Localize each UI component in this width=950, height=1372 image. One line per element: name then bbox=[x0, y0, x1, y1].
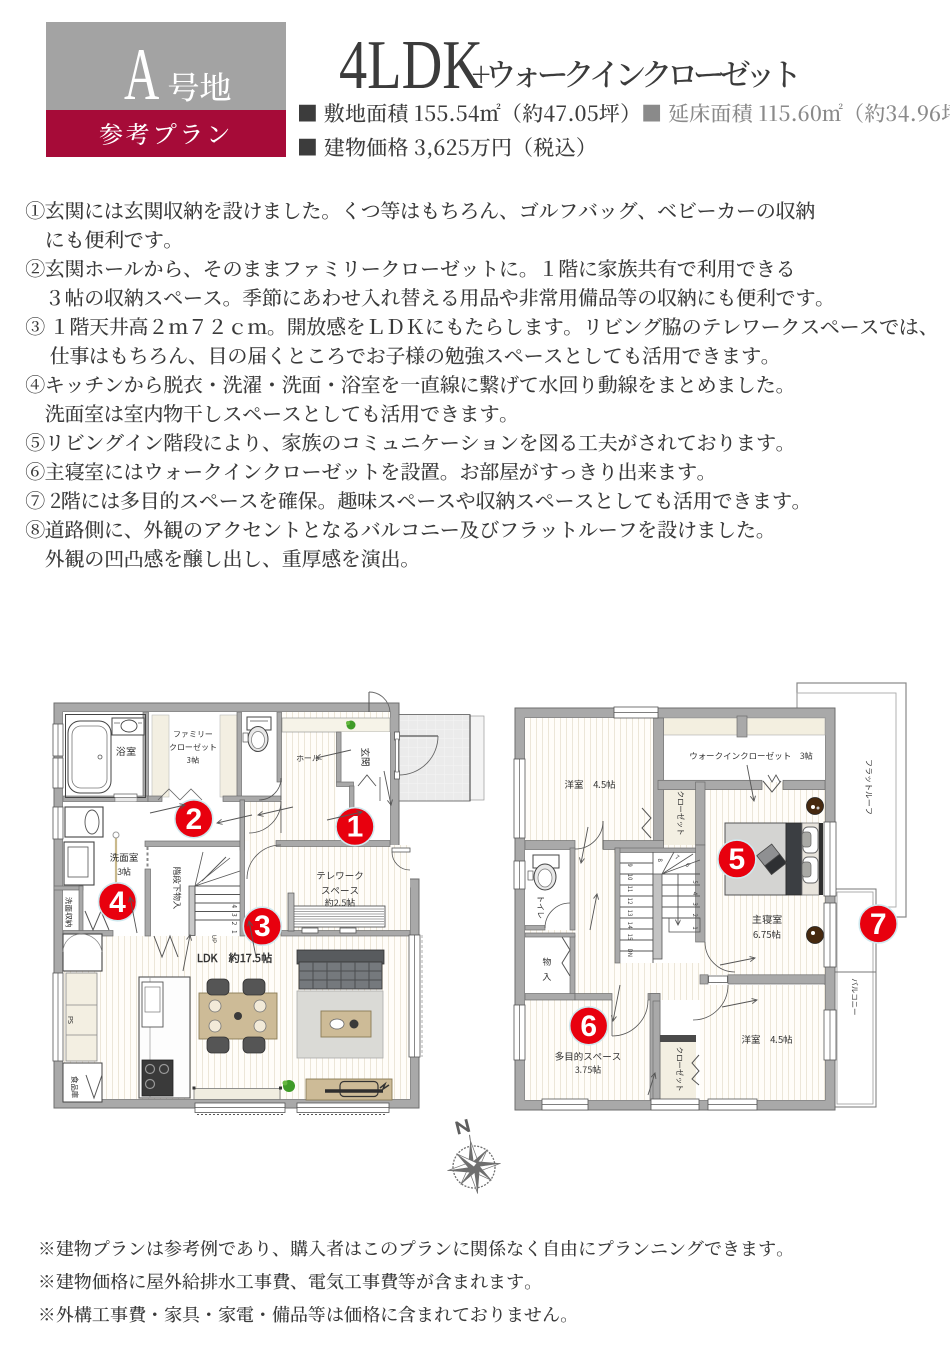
svg-text:階段下物入: 階段下物入 bbox=[171, 867, 183, 910]
svg-text:3: 3 bbox=[230, 912, 240, 917]
svg-text:10: 10 bbox=[626, 874, 635, 881]
svg-text:ウォークインクローゼット 3帖: ウォークインクローゼット 3帖 bbox=[689, 750, 813, 762]
svg-text:バルコニー: バルコニー bbox=[849, 978, 860, 1016]
svg-text:入: 入 bbox=[542, 970, 551, 983]
svg-text:14: 14 bbox=[626, 922, 635, 929]
svg-text:3帖: 3帖 bbox=[116, 865, 131, 878]
svg-text:2: 2 bbox=[230, 921, 240, 925]
svg-text:主寝室: 主寝室 bbox=[752, 911, 782, 926]
svg-text:5: 5 bbox=[691, 879, 700, 883]
svg-text:UP: UP bbox=[210, 935, 219, 943]
svg-text:6: 6 bbox=[580, 1010, 597, 1043]
svg-text:3.75帖: 3.75帖 bbox=[574, 1063, 602, 1076]
svg-text:クローゼット: クローゼット bbox=[675, 791, 686, 836]
svg-text:多目的スペース: 多目的スペース bbox=[555, 1049, 622, 1063]
svg-text:洗面室: 洗面室 bbox=[110, 850, 139, 864]
svg-text:15: 15 bbox=[626, 934, 635, 941]
svg-text:7: 7 bbox=[870, 908, 887, 941]
svg-text:テレワーク: テレワーク bbox=[316, 868, 364, 882]
svg-text:3帖: 3帖 bbox=[187, 755, 199, 766]
svg-text:洋室 4.5帖: 洋室 4.5帖 bbox=[564, 777, 615, 791]
svg-text:LDK 約17.5帖: LDK 約17.5帖 bbox=[197, 950, 272, 966]
svg-text:2: 2 bbox=[185, 803, 202, 836]
svg-text:ホール: ホール bbox=[296, 753, 320, 764]
svg-text:3: 3 bbox=[254, 910, 271, 943]
svg-text:5: 5 bbox=[729, 843, 746, 876]
svg-text:物: 物 bbox=[542, 955, 551, 968]
svg-text:浴室: 浴室 bbox=[116, 743, 136, 758]
svg-text:トイレ: トイレ bbox=[535, 895, 546, 919]
svg-text:クローゼット: クローゼット bbox=[674, 1047, 685, 1092]
svg-text:1: 1 bbox=[347, 811, 364, 844]
svg-text:12: 12 bbox=[626, 898, 635, 905]
svg-text:洗面収納: 洗面収納 bbox=[63, 896, 74, 927]
svg-text:スペース: スペース bbox=[321, 883, 359, 897]
svg-text:1: 1 bbox=[691, 926, 700, 929]
svg-text:玄関: 玄関 bbox=[359, 747, 373, 766]
svg-text:PS: PS bbox=[65, 1016, 75, 1025]
svg-text:3: 3 bbox=[691, 902, 700, 905]
svg-text:4: 4 bbox=[109, 886, 126, 919]
svg-text:1: 1 bbox=[230, 930, 240, 934]
svg-text:11: 11 bbox=[626, 886, 635, 893]
svg-text:13: 13 bbox=[626, 910, 635, 917]
svg-text:9: 9 bbox=[626, 863, 635, 866]
svg-text:2: 2 bbox=[691, 913, 700, 916]
svg-text:ファミリー: ファミリー bbox=[173, 729, 213, 740]
svg-text:食品庫: 食品庫 bbox=[69, 1076, 80, 1099]
svg-text:約2.5帖: 約2.5帖 bbox=[325, 896, 356, 909]
svg-text:洋室 4.5帖: 洋室 4.5帖 bbox=[741, 1032, 792, 1046]
svg-text:DN: DN bbox=[626, 949, 635, 957]
svg-text:6.75帖: 6.75帖 bbox=[753, 927, 781, 941]
svg-text:フラットルーフ: フラットルーフ bbox=[863, 759, 874, 815]
svg-text:クローゼット: クローゼット bbox=[169, 742, 217, 753]
svg-text:4: 4 bbox=[230, 904, 240, 908]
